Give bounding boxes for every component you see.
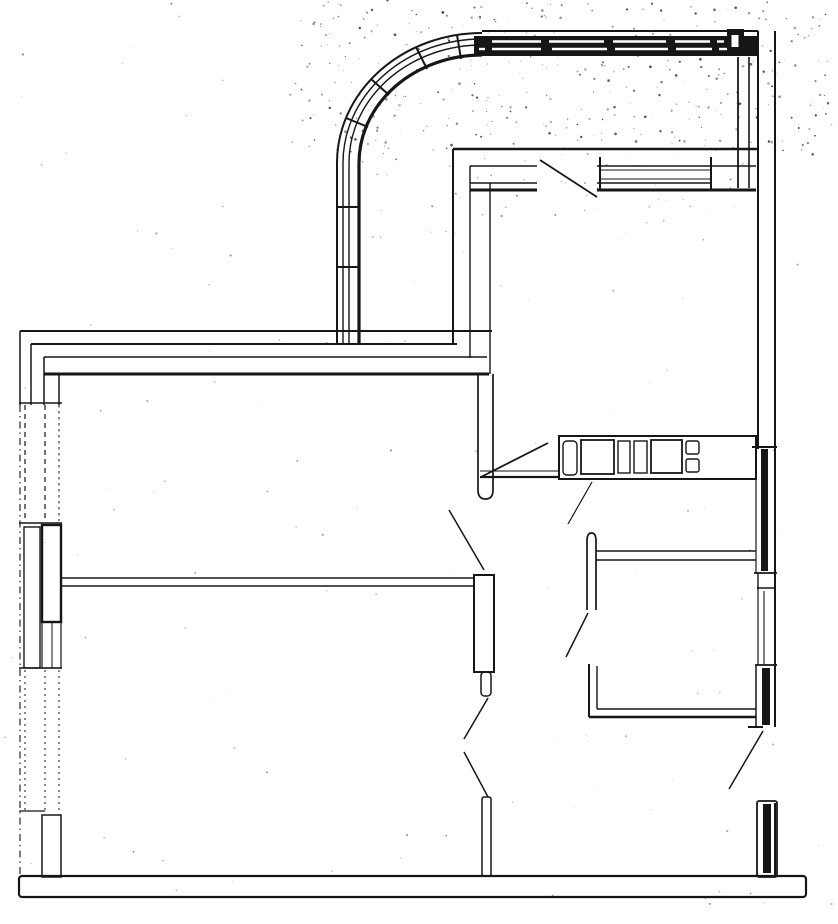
- scan-speckle: [509, 106, 511, 108]
- scan-speckle: [630, 103, 631, 104]
- scan-speckle: [713, 9, 716, 12]
- scan-speckle: [85, 637, 87, 639]
- scan-speckle: [475, 134, 477, 136]
- scan-speckle: [513, 143, 515, 145]
- scan-speckle: [329, 107, 331, 109]
- scan-speckle: [314, 21, 316, 23]
- scan-speckle: [495, 21, 496, 22]
- scan-speckle: [679, 140, 681, 142]
- room-door-swing: [449, 510, 484, 570]
- scan-speckle: [684, 80, 685, 81]
- scan-speckle: [398, 104, 401, 107]
- scan-speckle: [512, 802, 513, 803]
- scan-speckle: [742, 163, 744, 165]
- scan-speckle: [314, 139, 316, 141]
- scan-speckle: [449, 166, 450, 167]
- scan-speckle: [208, 284, 209, 285]
- scan-speckle: [716, 78, 718, 80]
- scan-speckle: [770, 141, 773, 144]
- scan-speckle: [376, 174, 378, 176]
- scan-speckle: [706, 213, 707, 214]
- scan-speckle: [626, 233, 627, 234]
- scan-speckle: [21, 96, 22, 97]
- scan-speckle: [824, 74, 826, 76]
- scan-speckle: [354, 138, 357, 141]
- scan-speckle: [819, 19, 820, 20]
- scan-speckle: [776, 73, 777, 74]
- left-pier-outer: [24, 527, 40, 668]
- scan-speckle: [736, 92, 737, 93]
- scan-speckle: [390, 336, 391, 337]
- scan-speckle: [676, 103, 678, 105]
- scan-speckle: [550, 4, 551, 5]
- scan-speckle: [172, 248, 173, 249]
- scan-speckle: [801, 149, 803, 151]
- scan-speckle: [586, 195, 588, 197]
- scan-speckle: [443, 98, 445, 100]
- scan-speckle: [331, 870, 332, 871]
- scan-speckle: [718, 74, 719, 75]
- scan-speckle: [309, 63, 311, 65]
- door-post-lower: [482, 797, 491, 876]
- scan-speckle: [818, 60, 819, 61]
- scan-speckle: [296, 460, 298, 462]
- scan-speckle: [536, 180, 537, 181]
- scan-speckle: [233, 747, 235, 749]
- scan-speckle: [398, 109, 399, 110]
- scan-speckle: [359, 27, 361, 29]
- scan-speckle: [321, 45, 322, 46]
- scan-speckle: [344, 130, 347, 133]
- scan-speckle: [706, 89, 707, 90]
- scan-speckle: [807, 142, 809, 144]
- kitchen-appliance-2: [581, 440, 614, 474]
- scan-speckle: [753, 807, 754, 808]
- scan-speckle: [762, 10, 764, 12]
- scan-speckle: [714, 21, 716, 23]
- scan-speckle: [369, 87, 370, 88]
- scan-speckle: [625, 735, 627, 737]
- scan-speckle: [474, 83, 475, 84]
- scan-speckle: [377, 24, 379, 26]
- scan-speckle: [368, 109, 369, 110]
- scan-speckle: [423, 130, 424, 131]
- scan-speckle: [214, 381, 216, 383]
- scan-speckle: [646, 222, 648, 224]
- scan-speckle: [708, 75, 710, 77]
- scan-speckle: [366, 12, 368, 14]
- scan-speckle: [380, 237, 381, 238]
- scan-speckle: [687, 510, 689, 512]
- scan-speckle: [730, 178, 732, 180]
- scan-speckle: [719, 891, 721, 893]
- scan-speckle: [313, 114, 314, 115]
- kitchen-appliance-1: [563, 441, 577, 475]
- scan-speckle: [830, 124, 832, 126]
- scan-speckle: [306, 66, 308, 68]
- scan-speckle: [719, 692, 721, 694]
- scan-speckle: [472, 110, 474, 112]
- scan-speckle: [401, 130, 402, 131]
- scan-speckle: [797, 264, 799, 266]
- scan-speckle: [658, 94, 660, 96]
- bath-wall-stub: [587, 533, 596, 610]
- scan-speckle: [609, 410, 610, 411]
- scan-speckle: [486, 100, 488, 102]
- scan-speckle: [473, 99, 474, 100]
- scan-speckle: [633, 90, 635, 92]
- scan-speckle: [375, 593, 377, 595]
- scan-speckle: [30, 863, 32, 865]
- scan-speckle: [667, 60, 669, 62]
- scan-speckle: [386, 0, 388, 2]
- scan-speckle: [814, 135, 816, 137]
- scan-speckle: [802, 144, 804, 146]
- bath-door-swing: [566, 613, 588, 657]
- scan-speckle: [380, 210, 381, 211]
- scan-speckle: [445, 835, 447, 837]
- scan-speckle: [549, 98, 551, 100]
- scan-speckle: [634, 116, 635, 117]
- scan-speckle: [414, 281, 415, 282]
- scan-speckle: [604, 65, 605, 66]
- scan-speckle: [715, 110, 716, 111]
- scan-speckle: [602, 119, 603, 120]
- scan-speckle: [584, 182, 586, 184]
- scan-speckle: [456, 123, 458, 125]
- scan-speckle: [385, 98, 388, 101]
- scan-speckle: [586, 735, 587, 736]
- scan-speckle: [494, 19, 496, 21]
- scan-speckle: [818, 844, 820, 846]
- scan-speckle: [613, 106, 615, 108]
- scan-speckle: [322, 534, 324, 536]
- scan-speckle: [271, 272, 272, 273]
- scan-speckle: [266, 771, 268, 773]
- scan-speckle: [593, 92, 594, 93]
- scan-speckle: [727, 8, 728, 9]
- scan-speckle: [555, 135, 556, 136]
- scan-speckle: [791, 117, 793, 119]
- scan-speckle: [267, 491, 269, 493]
- scan-speckle: [475, 450, 477, 452]
- scan-speckle: [660, 81, 662, 83]
- scan-speckle: [804, 37, 806, 39]
- scan-speckle: [531, 8, 532, 9]
- scan-speckle: [460, 68, 461, 69]
- scan-speckle: [506, 117, 508, 119]
- scan-speckle: [146, 400, 148, 402]
- scan-speckle: [454, 233, 455, 234]
- scan-speckle: [823, 107, 824, 108]
- scan-speckle: [406, 44, 408, 46]
- scan-speckle: [371, 9, 373, 11]
- scan-speckle: [44, 542, 45, 543]
- scan-speckle: [695, 105, 696, 106]
- scan-speckle: [164, 481, 165, 482]
- scan-speckle: [22, 53, 24, 55]
- scan-speckle: [719, 139, 721, 141]
- scan-speckle: [209, 350, 210, 351]
- scan-speckle: [753, 61, 754, 62]
- scan-speckle: [713, 649, 714, 650]
- scan-speckle: [395, 158, 397, 160]
- scan-speckle: [778, 95, 781, 98]
- scan-speckle: [546, 67, 547, 68]
- scan-speckle: [405, 96, 406, 97]
- scan-speckle: [170, 3, 172, 5]
- scan-speckle: [614, 133, 617, 136]
- scan-speckle: [351, 82, 352, 83]
- scan-speckle: [541, 9, 544, 12]
- scan-speckle: [772, 147, 773, 148]
- scan-speckle: [767, 82, 770, 85]
- scan-speckle: [811, 28, 813, 30]
- scan-speckle: [437, 91, 439, 93]
- scan-speckle: [329, 63, 330, 64]
- scan-speckle: [750, 167, 751, 168]
- scan-speckle: [755, 108, 757, 110]
- scan-speckle: [548, 132, 551, 135]
- scan-speckle: [557, 64, 558, 65]
- scan-speckle: [476, 96, 478, 98]
- scan-speckle: [403, 96, 404, 97]
- scan-speckle: [155, 232, 157, 234]
- scan-speckle: [41, 164, 43, 166]
- scan-speckle: [768, 140, 770, 142]
- scan-speckle: [392, 306, 393, 307]
- scan-speckle: [334, 82, 335, 83]
- scan-speckle: [11, 657, 12, 658]
- scan-speckle: [734, 206, 735, 207]
- scan-speckle: [696, 844, 697, 845]
- scan-speckle: [471, 94, 473, 96]
- scan-speckle: [523, 78, 524, 79]
- scan-speckle: [371, 105, 372, 106]
- scan-speckle: [519, 72, 520, 73]
- scan-speckle: [431, 205, 433, 207]
- scan-speckle: [528, 300, 529, 301]
- scan-speckle: [607, 79, 610, 82]
- scan-speckle: [640, 134, 641, 135]
- scan-speckle: [765, 18, 767, 20]
- scan-speckle: [577, 124, 578, 125]
- scan-speckle: [450, 144, 453, 147]
- scan-speckle: [541, 15, 543, 17]
- scan-speckle: [355, 117, 357, 119]
- scan-speckle: [387, 174, 388, 175]
- scan-speckle: [501, 106, 503, 108]
- scan-speckle: [542, 64, 543, 65]
- kitchen-door-swing: [481, 443, 548, 477]
- scan-speckle: [545, 16, 547, 18]
- scan-speckle: [651, 2, 653, 4]
- hall-wall-post: [478, 374, 493, 499]
- scan-speckle: [471, 17, 473, 19]
- scan-speckle: [648, 206, 650, 208]
- scan-speckle: [769, 50, 771, 52]
- scan-speckle: [372, 236, 374, 238]
- scan-speckle: [791, 40, 793, 42]
- scan-speckle: [689, 119, 690, 120]
- scan-speckle: [525, 160, 526, 161]
- scan-speckle: [122, 63, 123, 64]
- scan-speckle: [671, 110, 673, 112]
- scan-speckle: [660, 9, 662, 11]
- scan-speckle: [704, 508, 705, 509]
- scan-speckle: [649, 66, 652, 69]
- scan-speckle: [574, 807, 575, 808]
- scan-speckle: [581, 109, 582, 110]
- scan-speckle: [782, 140, 783, 141]
- scan-speckle: [666, 66, 667, 67]
- scan-speckle: [103, 837, 105, 839]
- scan-speckle: [696, 25, 697, 26]
- scan-speckle: [384, 146, 385, 147]
- scan-speckle: [794, 27, 797, 30]
- scan-speckle: [178, 15, 180, 17]
- scan-speckle: [279, 36, 280, 37]
- scan-speckle: [226, 692, 227, 693]
- scan-speckle: [674, 137, 675, 138]
- scan-speckle: [125, 758, 126, 759]
- kitchen-appliance-5: [651, 440, 682, 473]
- scan-speckle: [478, 100, 479, 101]
- scan-speckle: [302, 120, 304, 122]
- scan-speckle: [548, 587, 549, 588]
- scan-speckle: [626, 157, 627, 158]
- scan-speckle: [701, 127, 702, 128]
- scan-speckle: [626, 86, 628, 88]
- scan-speckle: [690, 6, 691, 7]
- scan-speckle: [376, 130, 378, 132]
- balcony-railing-top-band: [474, 36, 758, 56]
- scan-speckle: [462, 25, 463, 26]
- scan-speckle: [505, 206, 507, 208]
- scan-speckle: [762, 45, 763, 46]
- scan-speckle: [750, 893, 752, 895]
- scan-speckle: [395, 95, 397, 97]
- scan-speckle: [383, 153, 384, 154]
- scan-speckle: [300, 21, 301, 22]
- entry-door-swing: [729, 731, 763, 789]
- scan-speckle: [720, 114, 721, 115]
- scan-speckle: [734, 7, 737, 10]
- scan-speckle: [508, 62, 509, 63]
- scan-speckle: [526, 92, 527, 93]
- scan-speckle: [649, 382, 650, 383]
- scan-speckle: [24, 387, 26, 389]
- scan-speckle: [741, 598, 742, 599]
- right-wall-post-glass: [763, 804, 771, 873]
- scan-speckle: [320, 26, 321, 27]
- scan-speckle: [827, 61, 828, 62]
- scan-speckle: [338, 16, 340, 18]
- scan-speckle: [782, 150, 784, 152]
- scan-speckle: [591, 10, 593, 12]
- scan-speckle: [597, 791, 598, 792]
- scan-speckle: [295, 83, 296, 84]
- scan-speckle: [416, 14, 417, 15]
- scan-speckle: [449, 570, 450, 571]
- scan-speckle: [510, 123, 511, 124]
- scan-speckle: [675, 78, 676, 79]
- scan-speckle: [460, 198, 461, 199]
- scan-speckle: [137, 230, 138, 231]
- scan-speckle: [430, 232, 431, 233]
- scan-speckle: [447, 37, 449, 39]
- scan-speckle: [671, 143, 672, 144]
- scan-speckle: [486, 111, 487, 112]
- counter-leader-line: [568, 482, 592, 524]
- scan-speckle: [356, 508, 357, 509]
- scan-speckle: [394, 115, 396, 117]
- scan-speckle: [338, 3, 339, 4]
- scan-speckle: [769, 24, 770, 25]
- scan-speckle: [812, 101, 813, 102]
- scan-speckle: [674, 154, 675, 155]
- scan-speckle: [699, 58, 702, 61]
- scan-speckle: [567, 118, 568, 119]
- scan-speckle: [520, 61, 521, 62]
- scan-speckle: [329, 100, 330, 101]
- door-post-stub: [481, 672, 491, 696]
- scan-speckle: [794, 64, 796, 66]
- balcony-corner-post-hole: [732, 35, 739, 47]
- scan-speckle: [697, 693, 698, 694]
- scan-speckle: [750, 63, 753, 66]
- scan-speckle: [476, 177, 478, 179]
- scan-speckle: [650, 809, 651, 810]
- scan-speckle: [301, 89, 303, 91]
- scan-speckle: [623, 68, 625, 70]
- scan-speckle: [335, 124, 337, 126]
- scan-speckle: [186, 115, 187, 116]
- scan-speckle: [510, 111, 512, 113]
- scan-speckle: [546, 95, 547, 96]
- scan-speckle: [471, 65, 472, 66]
- scan-speckle: [663, 220, 665, 222]
- scan-speckle: [587, 741, 588, 742]
- scan-speckle: [669, 69, 670, 70]
- scan-speckle: [100, 410, 102, 412]
- scan-speckle: [727, 93, 729, 95]
- scan-speckle: [490, 134, 491, 135]
- scan-speckle: [808, 128, 810, 130]
- door-post: [474, 575, 494, 672]
- scan-speckle: [704, 145, 705, 146]
- plan-linework-layer: [19, 29, 806, 897]
- scan-speckle: [658, 199, 659, 200]
- scan-speckle: [694, 12, 696, 14]
- scan-speckle: [763, 902, 764, 903]
- scan-speckle: [473, 6, 475, 8]
- scan-speckle: [561, 181, 562, 182]
- scan-speckle: [259, 404, 260, 405]
- scan-speckle: [194, 572, 196, 574]
- scan-speckle: [530, 56, 531, 57]
- scan-speckle: [622, 239, 623, 240]
- scan-speckle: [175, 889, 177, 891]
- scan-speckle: [388, 148, 389, 149]
- scan-speckle: [675, 74, 678, 77]
- balcony-railing-arc-inner: [359, 55, 482, 163]
- scan-speckle: [487, 64, 488, 65]
- scan-speckle: [587, 153, 589, 155]
- scan-speckle: [448, 40, 450, 42]
- left-pier-inner: [42, 525, 61, 622]
- kitchen-appliance-4: [634, 441, 647, 473]
